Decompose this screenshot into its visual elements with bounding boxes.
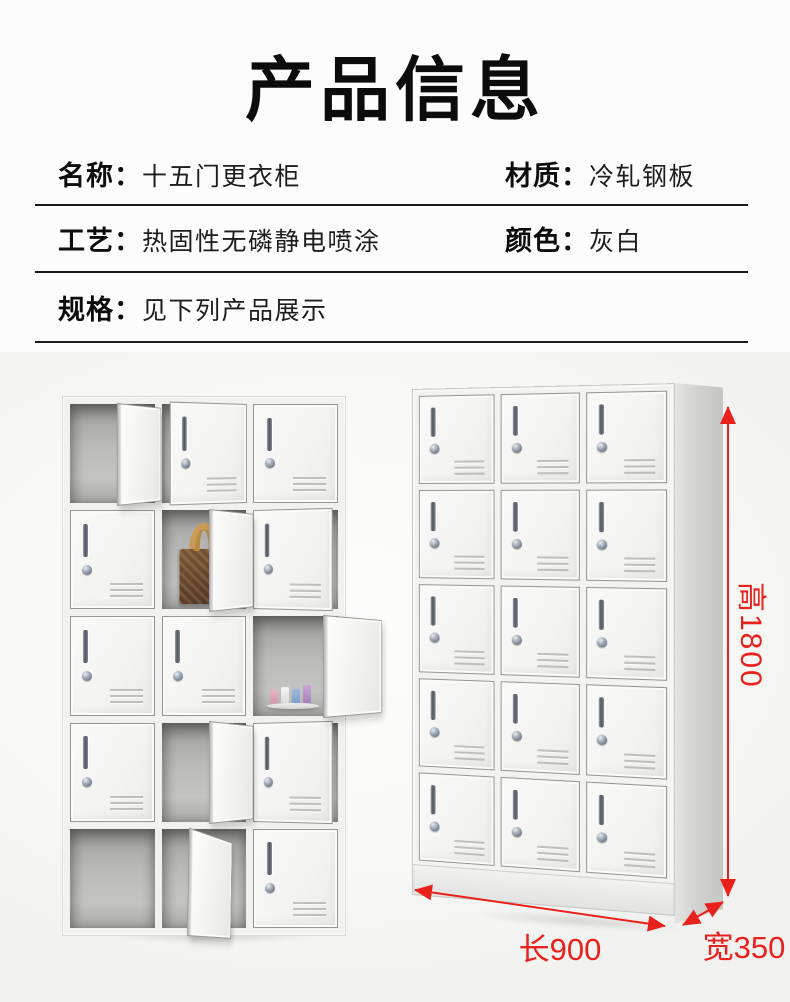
- door-lock-icon: [512, 635, 522, 645]
- locker-cell: [253, 616, 338, 715]
- cups-plate: [267, 703, 319, 709]
- locker-door: [501, 681, 580, 775]
- door-handle-icon: [267, 842, 272, 875]
- door-vents-icon: [290, 796, 321, 814]
- locker-door: [501, 777, 580, 872]
- door-vents-icon: [293, 902, 326, 919]
- dimension-width-label: 宽350: [684, 922, 790, 967]
- door-handle-icon: [431, 408, 436, 437]
- door-handle-icon: [431, 597, 436, 626]
- door-vents-icon: [538, 556, 569, 571]
- door-edge: [210, 510, 213, 611]
- locker-door: [586, 391, 667, 484]
- door-lock-icon: [264, 777, 273, 787]
- door-handle-icon: [83, 630, 88, 663]
- spec-row-name-material: 名称： 十五门更衣柜 材质： 冷轧钢板: [35, 143, 748, 206]
- door-lock-icon: [597, 442, 608, 452]
- door-lock-icon: [264, 565, 273, 575]
- door-handle-icon: [599, 600, 604, 630]
- door-vents-icon: [538, 845, 569, 862]
- locker-door: [253, 404, 338, 503]
- locker-door: [419, 772, 495, 866]
- locker-door: [586, 489, 667, 582]
- door-lock-icon: [82, 565, 92, 575]
- locker-cell: [253, 510, 338, 609]
- door-handle-icon: [182, 416, 187, 450]
- locker-cell: [253, 829, 338, 928]
- door-handle-icon: [267, 418, 272, 451]
- door-vents-icon: [110, 689, 143, 706]
- spec-label-craft: 工艺：: [58, 219, 142, 258]
- door-lock-icon: [180, 459, 189, 469]
- door-handle-icon: [513, 790, 518, 820]
- door-vents-icon: [454, 460, 484, 475]
- locker-cell: [70, 404, 155, 503]
- door-vents-icon: [293, 477, 326, 494]
- door-lock-icon: [597, 540, 608, 550]
- door-lock-icon: [429, 727, 439, 738]
- door-vents-icon: [624, 851, 656, 868]
- spec-cell-craft: 工艺： 热固性无磷静电喷涂: [35, 219, 505, 258]
- door-lock-icon: [512, 731, 522, 742]
- locker-door: [501, 586, 580, 678]
- door-vents-icon: [624, 753, 656, 770]
- locker-cell: [70, 723, 155, 822]
- open-locker-photo: [62, 396, 346, 936]
- door-handle-icon: [599, 502, 604, 532]
- open-door-panel: [209, 721, 253, 824]
- locker-door: [253, 720, 332, 823]
- locker-cell: [162, 829, 247, 928]
- locker-compartment: [70, 829, 155, 928]
- door-vents-icon: [110, 583, 143, 600]
- cup: [292, 689, 300, 703]
- door-vents-icon: [624, 655, 656, 671]
- door-lock-icon: [265, 458, 275, 468]
- spec-table: 名称： 十五门更衣柜 材质： 冷轧钢板 工艺： 热固性无磷静电喷涂 颜色： 灰白…: [35, 143, 748, 343]
- page: 产品信息 名称： 十五门更衣柜 材质： 冷轧钢板 工艺： 热固性无磷静电喷涂 颜…: [0, 0, 790, 1002]
- locker-cell: [253, 404, 338, 503]
- door-lock-icon: [429, 633, 439, 643]
- spec-label-size: 规格：: [58, 288, 142, 327]
- door-handle-icon: [513, 502, 518, 532]
- door-lock-icon: [429, 444, 439, 454]
- door-handle-icon: [175, 630, 180, 663]
- closed-locker-photo: [412, 383, 675, 916]
- locker-door: [586, 684, 667, 779]
- door-vents-icon: [454, 745, 484, 761]
- door-lock-icon: [597, 637, 608, 648]
- spec-row-size: 规格： 见下列产品展示: [35, 273, 748, 343]
- spec-cell-size: 规格： 见下列产品展示: [35, 288, 505, 327]
- spec-cell-material: 材质： 冷轧钢板: [505, 154, 748, 193]
- spec-value-size: 见下列产品展示: [142, 291, 328, 327]
- locker-cell: [253, 723, 338, 822]
- door-handle-icon: [513, 406, 518, 436]
- door-handle-icon: [431, 502, 436, 531]
- open-door-panel: [187, 828, 232, 939]
- door-vents-icon: [538, 652, 569, 668]
- door-vents-icon: [202, 689, 235, 706]
- spec-value-craft: 热固性无磷静电喷涂: [142, 222, 381, 258]
- locker-door: [70, 510, 155, 609]
- spec-row-craft-color: 工艺： 热固性无磷静电喷涂 颜色： 灰白: [35, 206, 748, 273]
- open-door-panel: [117, 403, 161, 506]
- dimension-length-label: 长900: [500, 924, 620, 969]
- door-lock-icon: [173, 671, 183, 681]
- locker-door: [70, 723, 155, 822]
- door-vents-icon: [207, 477, 237, 494]
- cup: [281, 687, 289, 703]
- locker-cell: [70, 616, 155, 715]
- closed-locker-door-grid: [419, 391, 667, 879]
- page-title: 产品信息: [0, 34, 790, 135]
- spec-label-color: 颜色：: [505, 219, 589, 258]
- door-handle-icon: [431, 691, 436, 721]
- door-handle-icon: [265, 523, 270, 556]
- door-lock-icon: [82, 671, 92, 681]
- locker-cell: [70, 829, 155, 928]
- door-lock-icon: [597, 735, 608, 746]
- door-vents-icon: [454, 840, 484, 857]
- dimension-height-label: 高1800: [732, 582, 776, 689]
- door-handle-icon: [431, 785, 436, 815]
- spec-label-name: 名称：: [58, 154, 142, 193]
- spec-value-color: 灰白: [589, 222, 642, 258]
- locker-door: [419, 490, 495, 579]
- cup: [303, 685, 311, 703]
- door-handle-icon: [599, 405, 604, 435]
- cup: [270, 690, 278, 703]
- locker-door: [586, 587, 667, 681]
- locker-door: [419, 678, 495, 770]
- locker-door: [162, 616, 247, 715]
- door-handle-icon: [599, 697, 604, 728]
- door-lock-icon: [597, 832, 608, 843]
- door-vents-icon: [624, 557, 656, 573]
- locker-cell: [70, 510, 155, 609]
- door-handle-icon: [513, 694, 518, 724]
- spec-cell-name: 名称： 十五门更衣柜: [35, 154, 505, 193]
- door-lock-icon: [82, 777, 92, 787]
- locker-door: [253, 508, 332, 611]
- door-handle-icon: [513, 598, 518, 628]
- locker-door: [501, 392, 580, 483]
- locker-door: [169, 402, 246, 506]
- open-locker-door-grid: [70, 404, 338, 928]
- door-lock-icon: [429, 821, 439, 832]
- door-lock-icon: [512, 539, 522, 549]
- locker-door: [586, 782, 667, 879]
- door-vents-icon: [624, 459, 656, 474]
- open-door-panel: [323, 615, 381, 718]
- door-vents-icon: [538, 459, 569, 474]
- door-lock-icon: [512, 443, 522, 453]
- spec-cell-color: 颜色： 灰白: [505, 219, 748, 258]
- spec-value-material: 冷轧钢板: [589, 157, 695, 193]
- locker-door: [501, 490, 580, 581]
- locker-door: [70, 616, 155, 715]
- door-lock-icon: [265, 883, 275, 893]
- door-handle-icon: [83, 736, 88, 769]
- locker-door: [419, 394, 495, 484]
- door-edge: [210, 722, 213, 823]
- locker-side-panel: [675, 382, 723, 928]
- door-handle-icon: [265, 736, 270, 769]
- locker-cell: [162, 404, 247, 503]
- locker-front-face: [412, 383, 675, 916]
- locker-door: [419, 584, 495, 675]
- door-vents-icon: [290, 584, 321, 602]
- door-lock-icon: [512, 827, 522, 838]
- door-edge: [323, 616, 327, 717]
- open-door-panel: [209, 509, 253, 612]
- door-vents-icon: [538, 749, 569, 766]
- door-vents-icon: [454, 555, 484, 570]
- locker-cell: [162, 616, 247, 715]
- spec-value-name: 十五门更衣柜: [142, 157, 301, 193]
- door-vents-icon: [110, 796, 143, 813]
- spec-label-material: 材质：: [505, 154, 589, 193]
- door-vents-icon: [454, 650, 484, 666]
- locker-cell: [162, 510, 247, 609]
- door-edge: [188, 829, 193, 935]
- door-handle-icon: [599, 795, 604, 826]
- locker-door: [253, 829, 338, 928]
- locker-cell: [162, 723, 247, 822]
- door-handle-icon: [83, 524, 88, 557]
- door-lock-icon: [429, 538, 439, 548]
- door-edge: [118, 404, 121, 505]
